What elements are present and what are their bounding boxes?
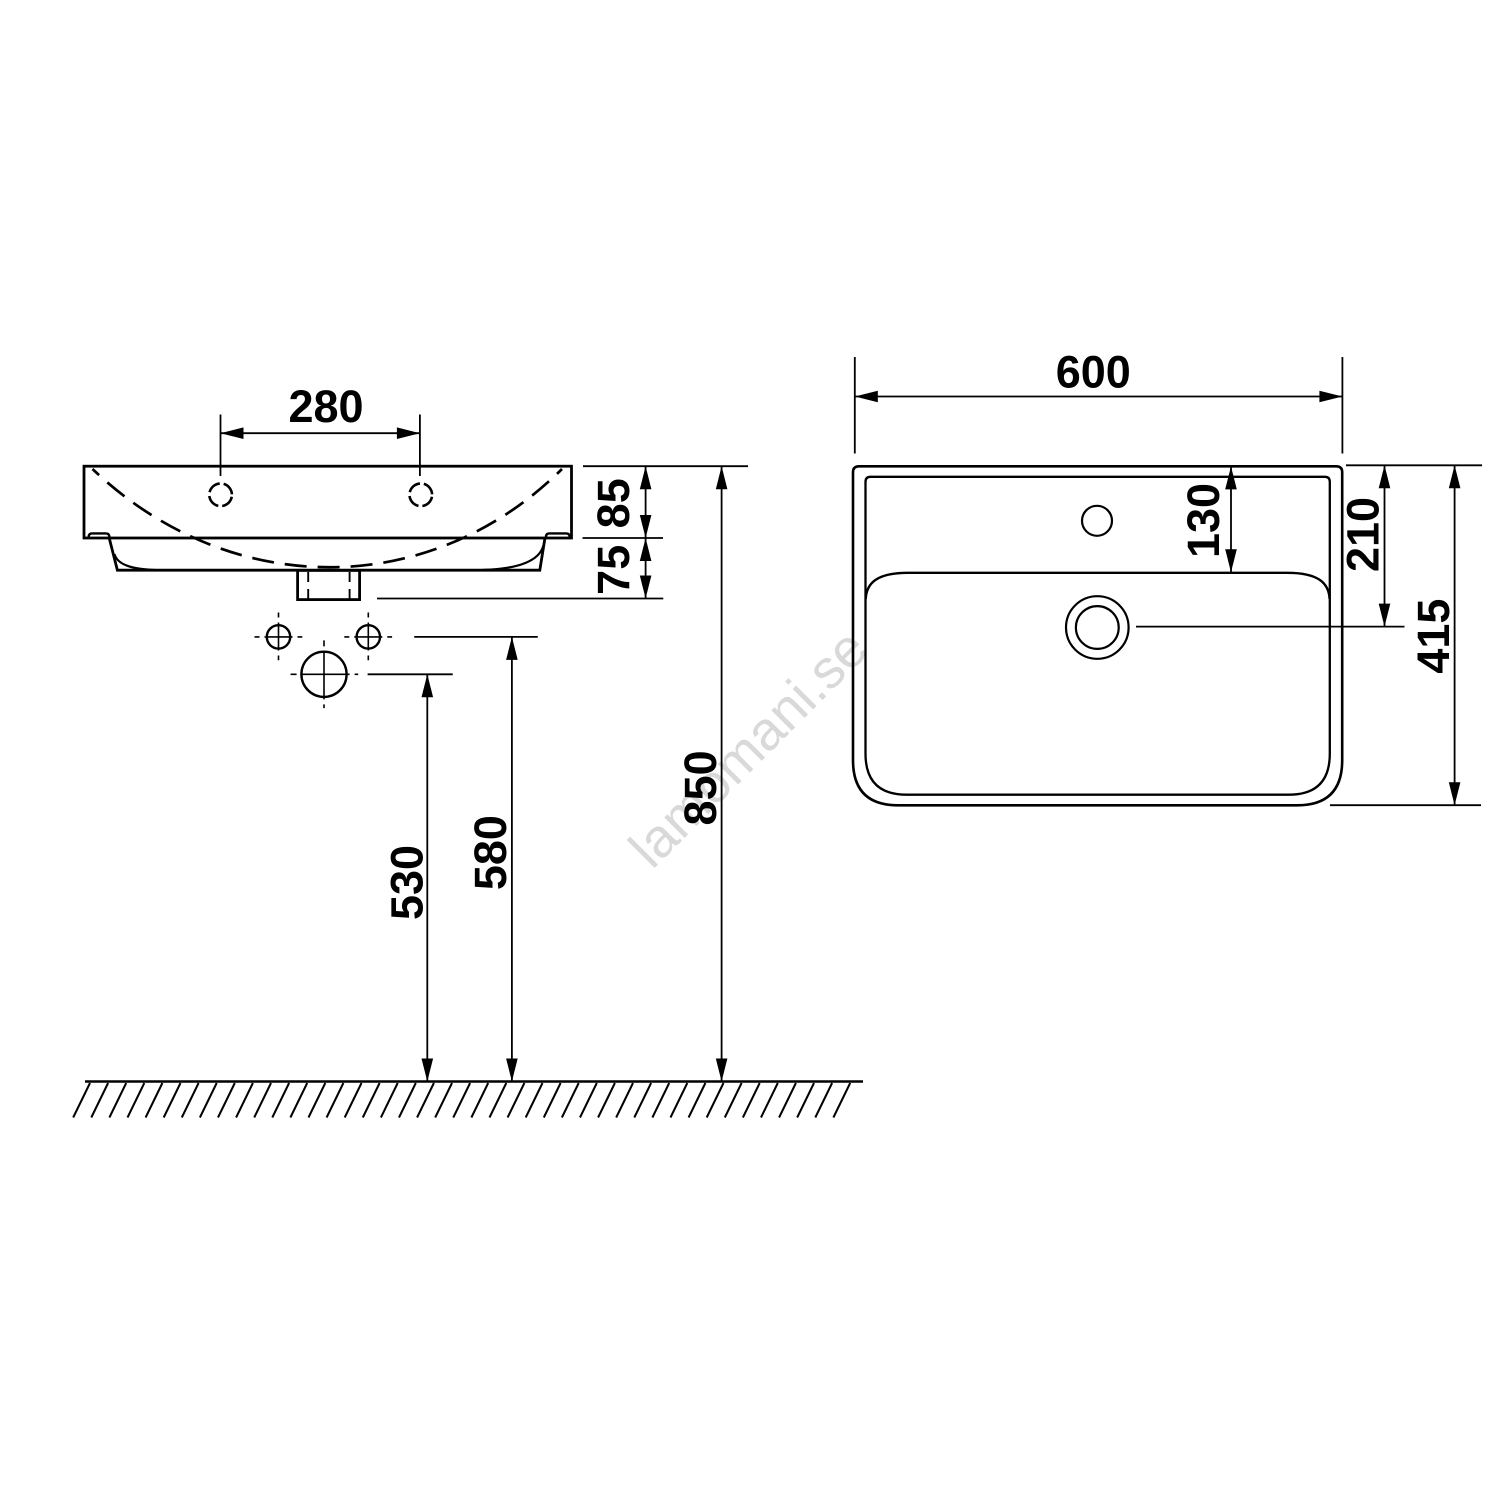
svg-text:530: 530 bbox=[382, 845, 433, 920]
svg-text:415: 415 bbox=[1408, 599, 1459, 674]
svg-text:85: 85 bbox=[588, 478, 639, 528]
svg-text:850: 850 bbox=[675, 750, 726, 825]
svg-text:600: 600 bbox=[1056, 347, 1131, 398]
svg-text:580: 580 bbox=[465, 815, 516, 890]
svg-text:280: 280 bbox=[288, 381, 363, 432]
svg-text:75: 75 bbox=[588, 545, 639, 595]
svg-text:130: 130 bbox=[1178, 483, 1229, 558]
svg-text:210: 210 bbox=[1337, 497, 1388, 572]
